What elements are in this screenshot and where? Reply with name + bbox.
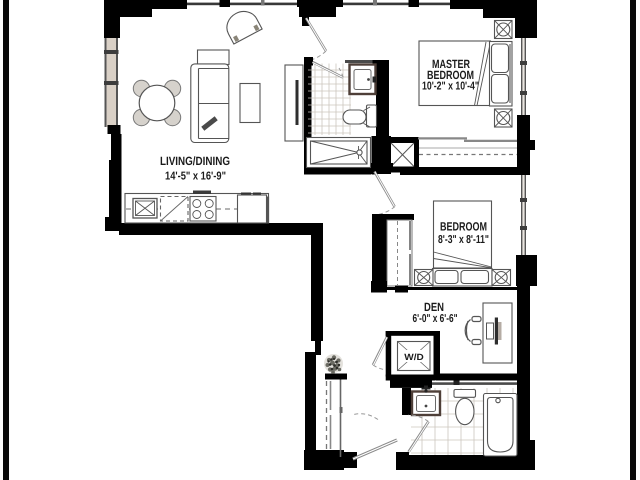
svg-text:10'-2" x 10'-4": 10'-2" x 10'-4" [422,81,479,93]
svg-text:6'-0" x 6'-6": 6'-0" x 6'-6" [413,313,458,325]
svg-text:14'-5" x 16'-9": 14'-5" x 16'-9" [165,171,226,183]
svg-text:8'-3" x 8'-11": 8'-3" x 8'-11" [438,234,489,246]
svg-text:DEN: DEN [424,300,444,314]
svg-text:W/D: W/D [404,352,424,362]
svg-text:LIVING/DINING: LIVING/DINING [160,154,230,168]
svg-text:BEDROOM: BEDROOM [440,220,487,234]
